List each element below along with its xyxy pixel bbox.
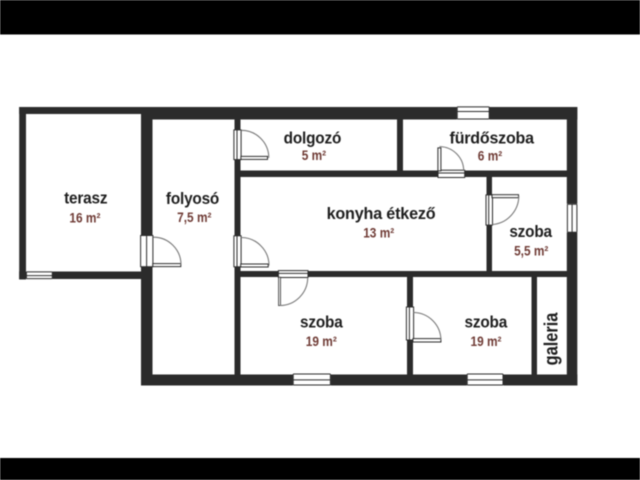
svg-text:13 m²: 13 m² bbox=[363, 225, 395, 241]
svg-text:19 m²: 19 m² bbox=[306, 333, 338, 349]
svg-text:galeria: galeria bbox=[540, 312, 562, 366]
svg-text:szoba: szoba bbox=[509, 224, 552, 242]
svg-text:konyha étkező: konyha étkező bbox=[327, 205, 436, 223]
svg-text:7,5 m²: 7,5 m² bbox=[177, 209, 212, 225]
svg-text:19 m²: 19 m² bbox=[471, 333, 503, 349]
svg-text:dolgozó: dolgozó bbox=[284, 130, 342, 148]
svg-text:szoba: szoba bbox=[465, 314, 508, 332]
svg-text:5 m²: 5 m² bbox=[302, 147, 327, 163]
svg-text:5,5 m²: 5,5 m² bbox=[514, 242, 549, 258]
svg-text:fürdőszoba: fürdőszoba bbox=[450, 129, 535, 147]
svg-text:16 m²: 16 m² bbox=[69, 210, 101, 226]
svg-text:6 m²: 6 m² bbox=[478, 147, 503, 163]
svg-text:szoba: szoba bbox=[300, 314, 343, 332]
svg-text:terasz: terasz bbox=[64, 190, 107, 208]
svg-text:folyosó: folyosó bbox=[166, 190, 220, 208]
